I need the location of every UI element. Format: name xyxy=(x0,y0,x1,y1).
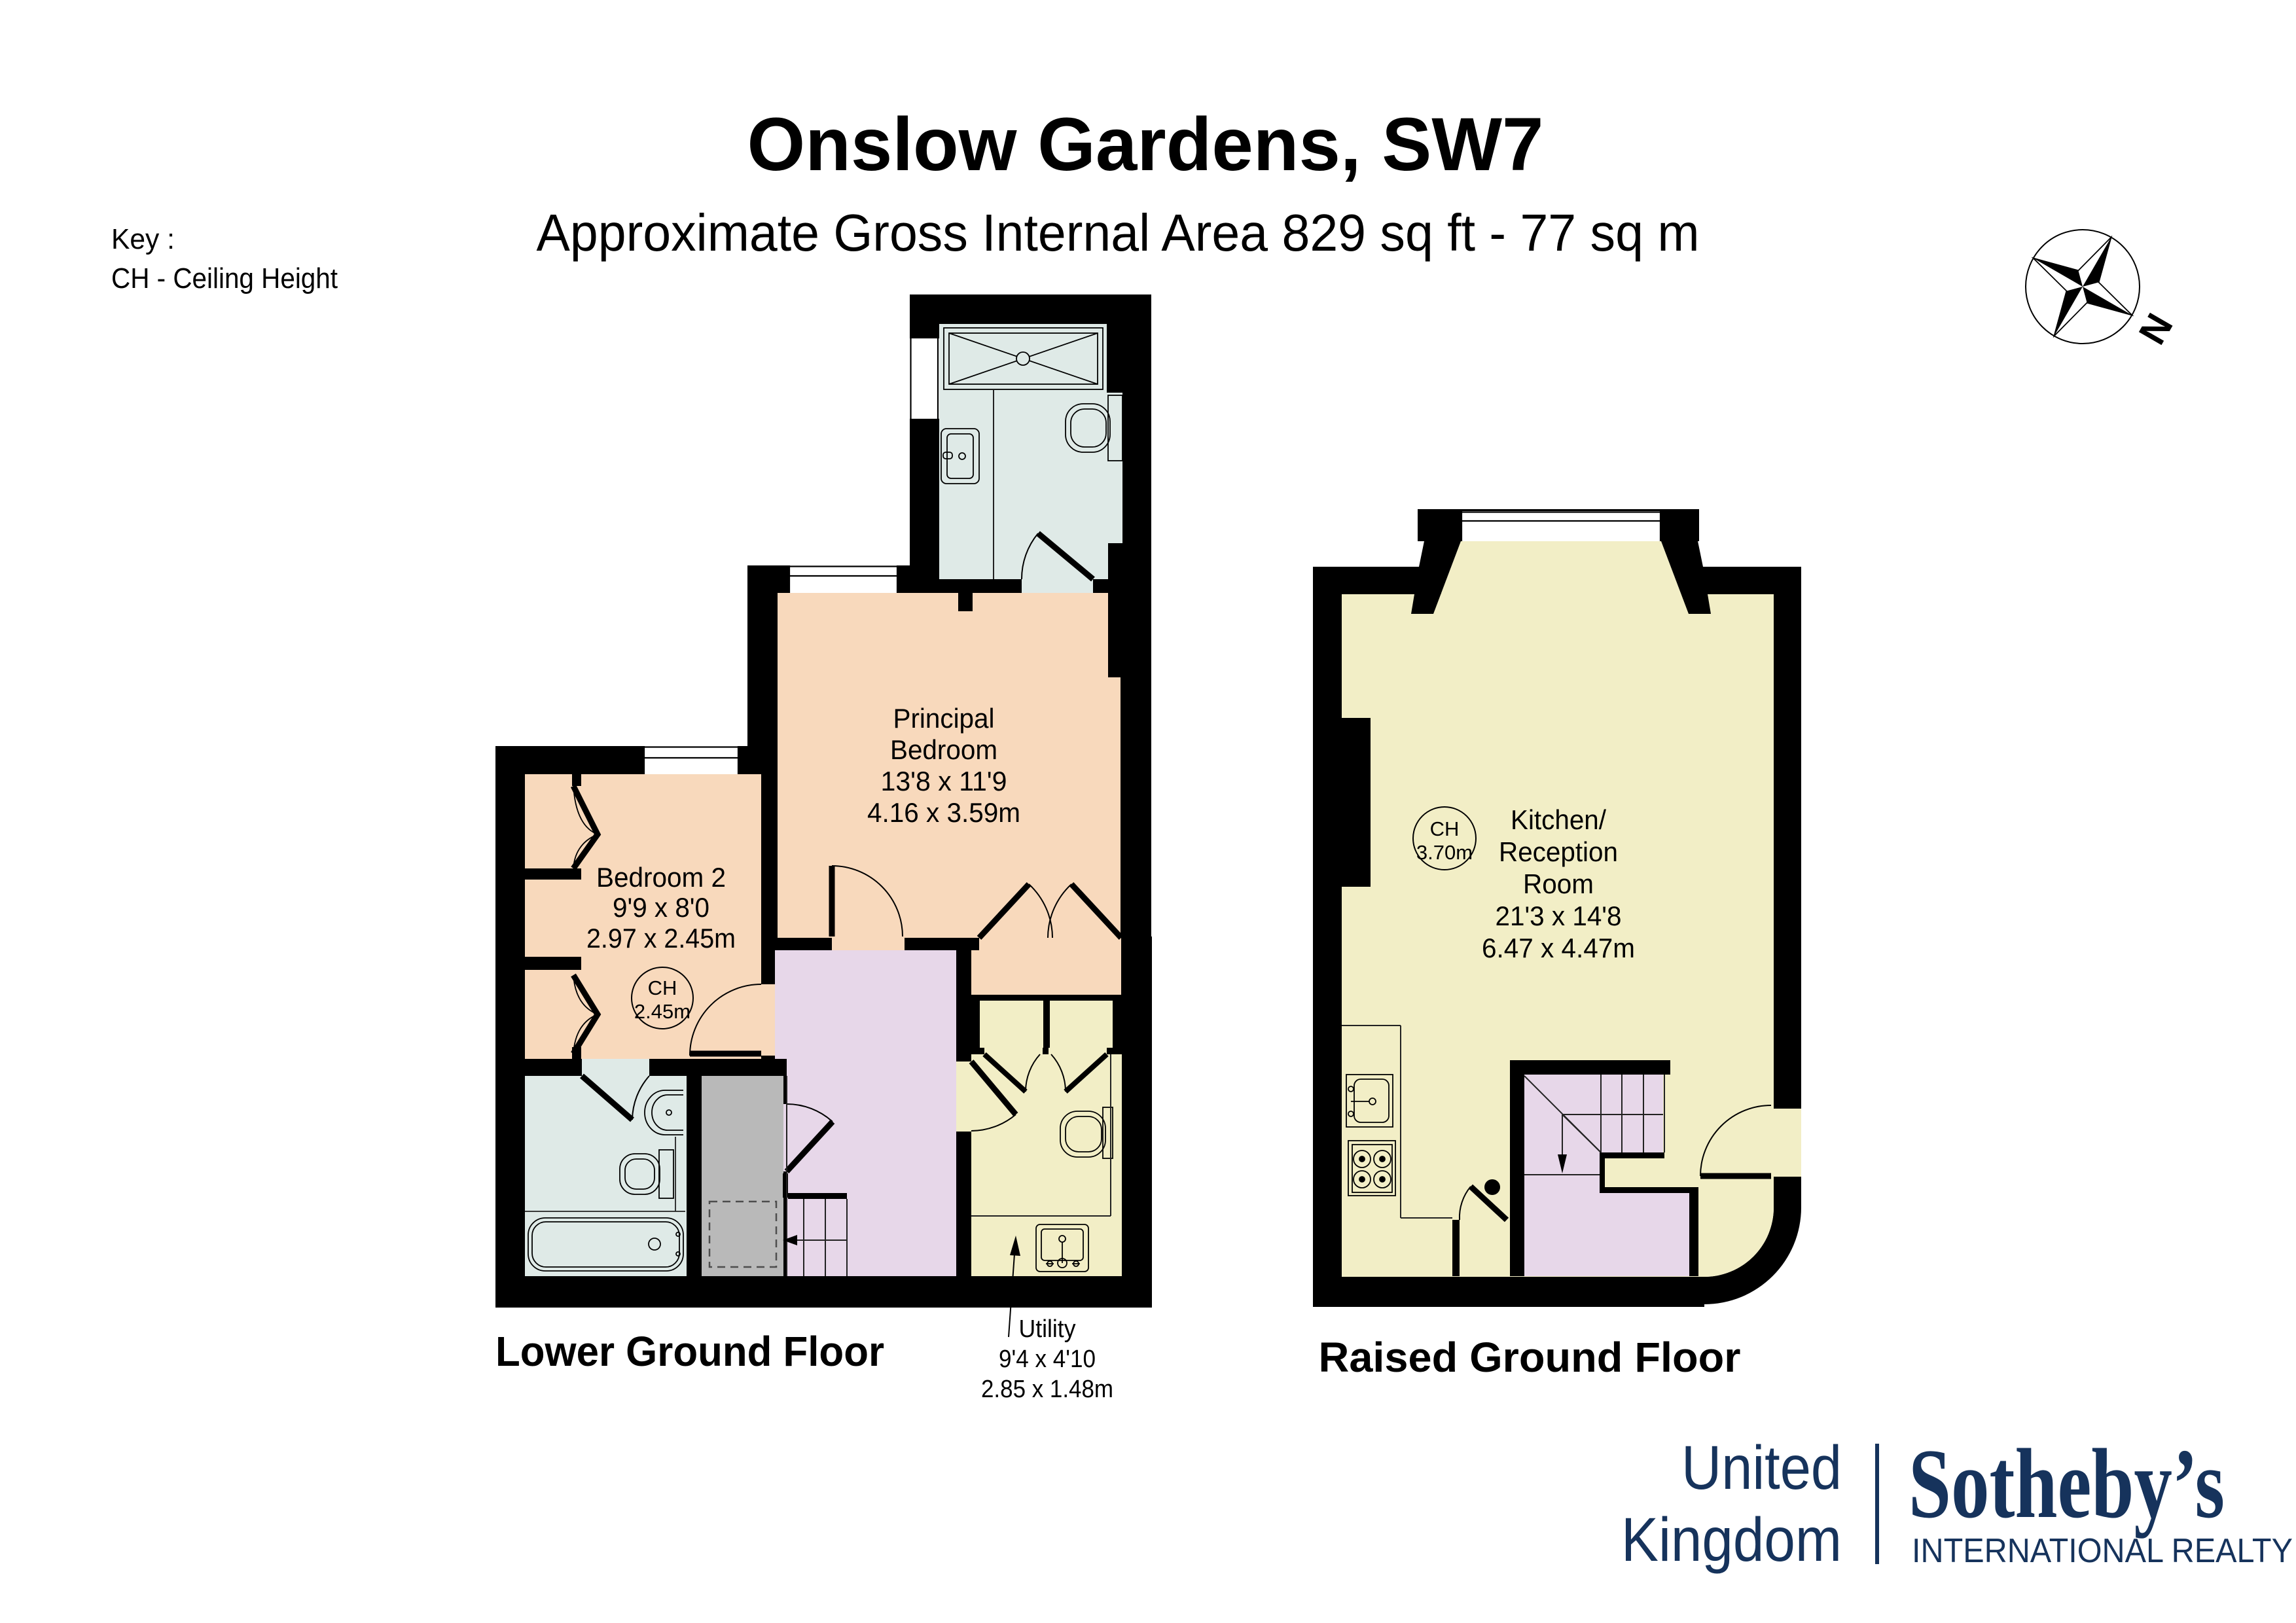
svg-text:INTERNATIONAL REALTY: INTERNATIONAL REALTY xyxy=(1912,1532,2293,1570)
svg-text:Principal: Principal xyxy=(893,703,995,734)
svg-text:4.16 x 3.59m: 4.16 x 3.59m xyxy=(867,797,1020,828)
svg-text:Kingdom: Kingdom xyxy=(1621,1505,1842,1575)
svg-text:Lower Ground Floor: Lower Ground Floor xyxy=(495,1328,884,1375)
svg-text:Reception: Reception xyxy=(1499,836,1618,867)
svg-text:Onslow Gardens, SW7: Onslow Gardens, SW7 xyxy=(747,103,1544,187)
svg-text:Key :: Key : xyxy=(111,223,175,255)
svg-text:2.97 x 2.45m: 2.97 x 2.45m xyxy=(586,923,736,954)
svg-text:CH: CH xyxy=(1430,817,1460,840)
svg-text:Kitchen/: Kitchen/ xyxy=(1511,804,1606,835)
svg-text:United: United xyxy=(1681,1433,1842,1503)
svg-text:13'8 x 11'9: 13'8 x 11'9 xyxy=(881,766,1007,796)
svg-text:9'4 x 4'10: 9'4 x 4'10 xyxy=(999,1346,1096,1373)
svg-text:21'3 x 14'8: 21'3 x 14'8 xyxy=(1496,901,1622,931)
svg-text:Sotheby’s: Sotheby’s xyxy=(1909,1429,2225,1539)
svg-text:6.47 x 4.47m: 6.47 x 4.47m xyxy=(1482,933,1635,963)
svg-text:Room: Room xyxy=(1523,868,1594,899)
svg-text:3.70m: 3.70m xyxy=(1416,841,1473,864)
svg-text:2.45m: 2.45m xyxy=(634,1000,691,1023)
svg-text:Raised Ground Floor: Raised Ground Floor xyxy=(1319,1334,1741,1381)
svg-text:9'9 x 8'0: 9'9 x 8'0 xyxy=(613,892,709,923)
svg-text:Approximate Gross Internal Are: Approximate Gross Internal Area 829 sq f… xyxy=(537,204,1700,262)
svg-text:2.85 x 1.48m: 2.85 x 1.48m xyxy=(981,1376,1113,1403)
svg-text:Utility: Utility xyxy=(1019,1315,1076,1343)
svg-text:CH: CH xyxy=(648,976,677,999)
svg-text:CH - Ceiling Height: CH - Ceiling Height xyxy=(111,262,338,294)
svg-text:Bedroom: Bedroom xyxy=(890,734,997,765)
svg-text:Bedroom 2: Bedroom 2 xyxy=(596,862,726,893)
